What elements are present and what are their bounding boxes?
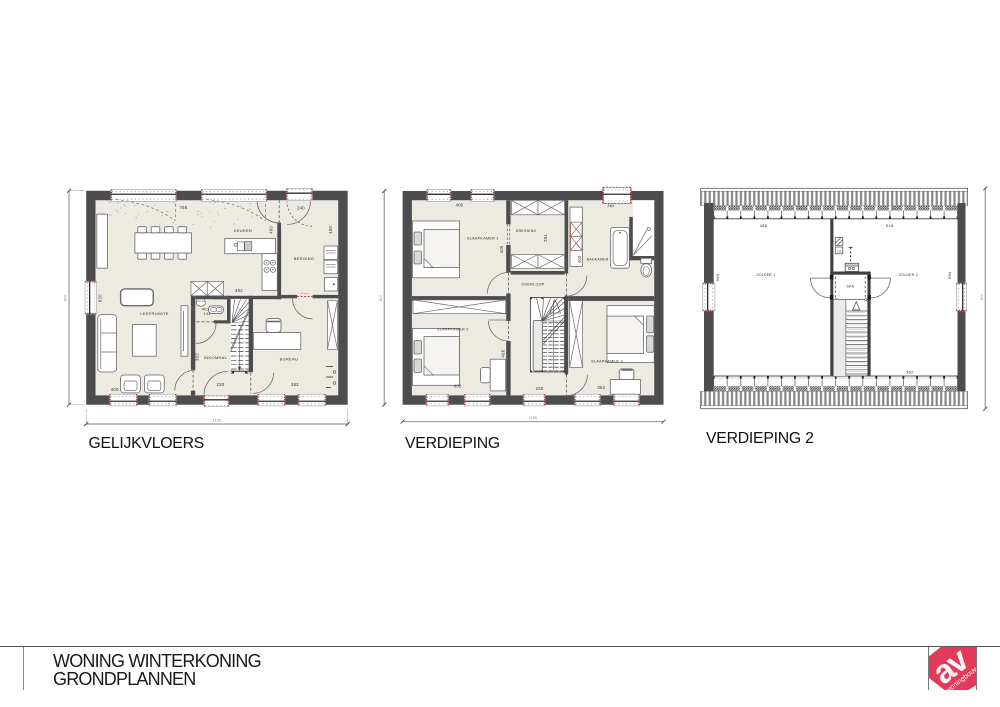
svg-text:488: 488: [760, 223, 768, 228]
svg-text:400: 400: [328, 225, 333, 233]
svg-text:900: 900: [980, 294, 984, 301]
svg-text:362: 362: [291, 382, 299, 387]
svg-text:660: 660: [715, 273, 720, 281]
svg-text:1100: 1100: [213, 419, 222, 423]
svg-text:766: 766: [180, 205, 188, 210]
svg-text:302: 302: [195, 353, 200, 361]
svg-text:1100: 1100: [529, 416, 538, 420]
svg-text:400: 400: [111, 387, 119, 392]
svg-text:820: 820: [97, 294, 102, 302]
svg-text:OVERLOOP: OVERLOOP: [521, 282, 544, 286]
svg-text:WC: WC: [202, 308, 209, 312]
svg-text:144: 144: [203, 312, 210, 316]
svg-text:362: 362: [597, 385, 605, 390]
svg-text:406: 406: [501, 349, 506, 357]
svg-text:900: 900: [379, 295, 383, 302]
svg-text:240: 240: [297, 205, 305, 210]
svg-text:362: 362: [607, 203, 615, 208]
svg-text:BUREAU: BUREAU: [280, 356, 298, 361]
svg-text:ZOLDER 1: ZOLDER 1: [757, 273, 776, 277]
svg-text:KEUKEN: KEUKEN: [234, 228, 252, 233]
svg-text:BADKAMER: BADKAMER: [587, 258, 609, 262]
svg-text:SLAAPKAMER 3: SLAAPKAMER 3: [591, 359, 623, 363]
svg-text:230: 230: [216, 382, 224, 387]
svg-text:352: 352: [235, 288, 243, 293]
svg-text:230: 230: [536, 386, 544, 391]
svg-text:ZOLDER 2: ZOLDER 2: [899, 273, 918, 277]
svg-text:518: 518: [886, 223, 894, 228]
svg-text:400: 400: [269, 225, 274, 233]
svg-text:400: 400: [456, 202, 464, 207]
svg-text:CO: CO: [837, 250, 842, 254]
svg-text:405: 405: [499, 245, 504, 253]
svg-text:400: 400: [454, 384, 462, 389]
svg-text:DRESSING: DRESSING: [516, 229, 537, 233]
svg-text:SLAAPKAMER 2: SLAAPKAMER 2: [437, 328, 469, 332]
svg-text:SLAAPKAMER 1: SLAAPKAMER 1: [467, 236, 499, 240]
svg-text:30 min: 30 min: [301, 293, 310, 295]
svg-text:660: 660: [947, 271, 952, 279]
svg-text:SAS: SAS: [847, 285, 855, 289]
svg-text:362: 362: [906, 370, 914, 375]
svg-text:900: 900: [64, 295, 68, 302]
svg-text:BERGING: BERGING: [294, 256, 315, 261]
svg-text:LEEFRUIMTE: LEEFRUIMTE: [140, 311, 168, 316]
svg-text:291: 291: [543, 234, 548, 242]
svg-text:400: 400: [577, 255, 582, 263]
svg-text:INKOMHAL: INKOMHAL: [204, 355, 228, 360]
